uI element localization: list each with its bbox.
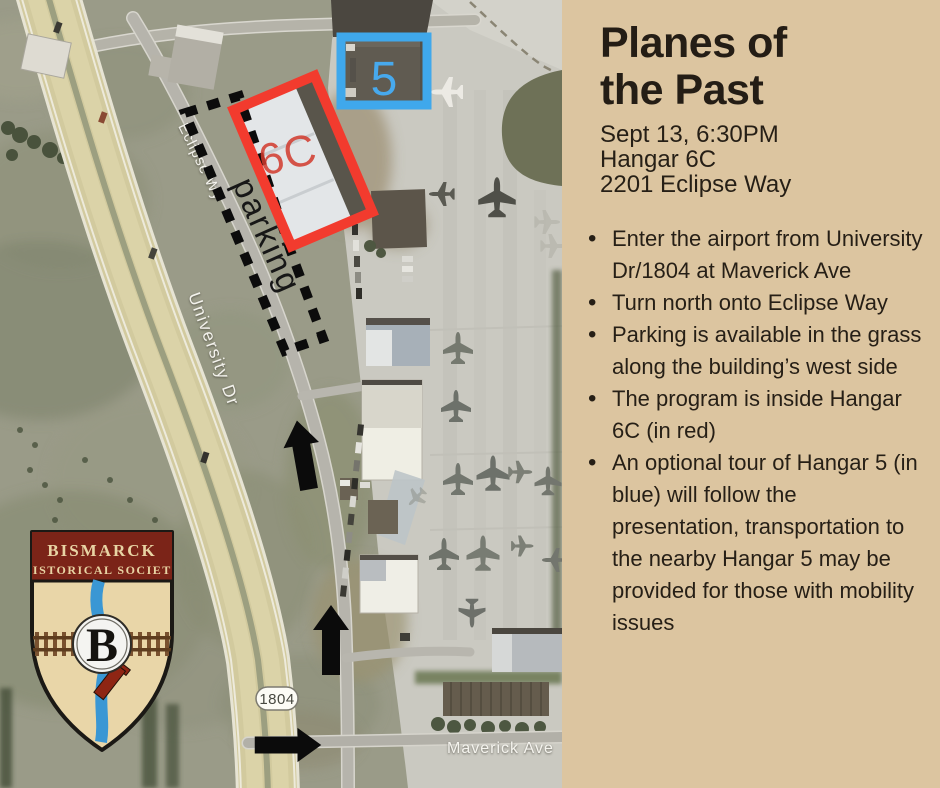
event-date: Sept 13, 6:30PM [600, 123, 926, 147]
route-1804-shield: 1804 [256, 687, 298, 710]
maverick-ave-label: Maverick Ave [447, 740, 554, 757]
direction-item: Parking is available in the grass along … [586, 319, 926, 383]
info-panel: Planes of the Past Sept 13, 6:30PM Hanga… [562, 0, 940, 788]
event-venue: Hangar 6C [600, 148, 926, 172]
directions-list: Enter the airport from University Dr/180… [586, 223, 926, 639]
event-flyer: Eclipse Wy University Dr Maverick Ave 18… [0, 0, 940, 788]
event-title-line2: the Past [600, 66, 763, 114]
direction-item: The program is inside Hangar 6C (in red) [586, 383, 926, 447]
logo-org-line1: BISMARCK [47, 541, 157, 560]
logo-monogram: B [86, 619, 118, 672]
hangar-5-label: 5 [371, 53, 398, 106]
event-title-line1: Planes of [600, 19, 787, 67]
satellite-map: Eclipse Wy University Dr Maverick Ave 18… [0, 0, 562, 788]
airport-map: Eclipse Wy University Dr Maverick Ave 18… [0, 0, 562, 788]
logo-org-line2: HISTORICAL SOCIETY [22, 563, 182, 577]
route-1804-text: 1804 [259, 691, 294, 708]
event-details: Sept 13, 6:30PM Hangar 6C 2201 Eclipse W… [600, 123, 926, 197]
event-address: 2201 Eclipse Way [600, 173, 926, 197]
ridged-building [443, 682, 549, 716]
direction-item: An optional tour of Hangar 5 (in blue) w… [586, 447, 926, 639]
direction-item: Enter the airport from University Dr/180… [586, 223, 926, 287]
event-title: Planes of the Past [600, 20, 926, 114]
direction-item: Turn north onto Eclipse Way [586, 287, 926, 319]
